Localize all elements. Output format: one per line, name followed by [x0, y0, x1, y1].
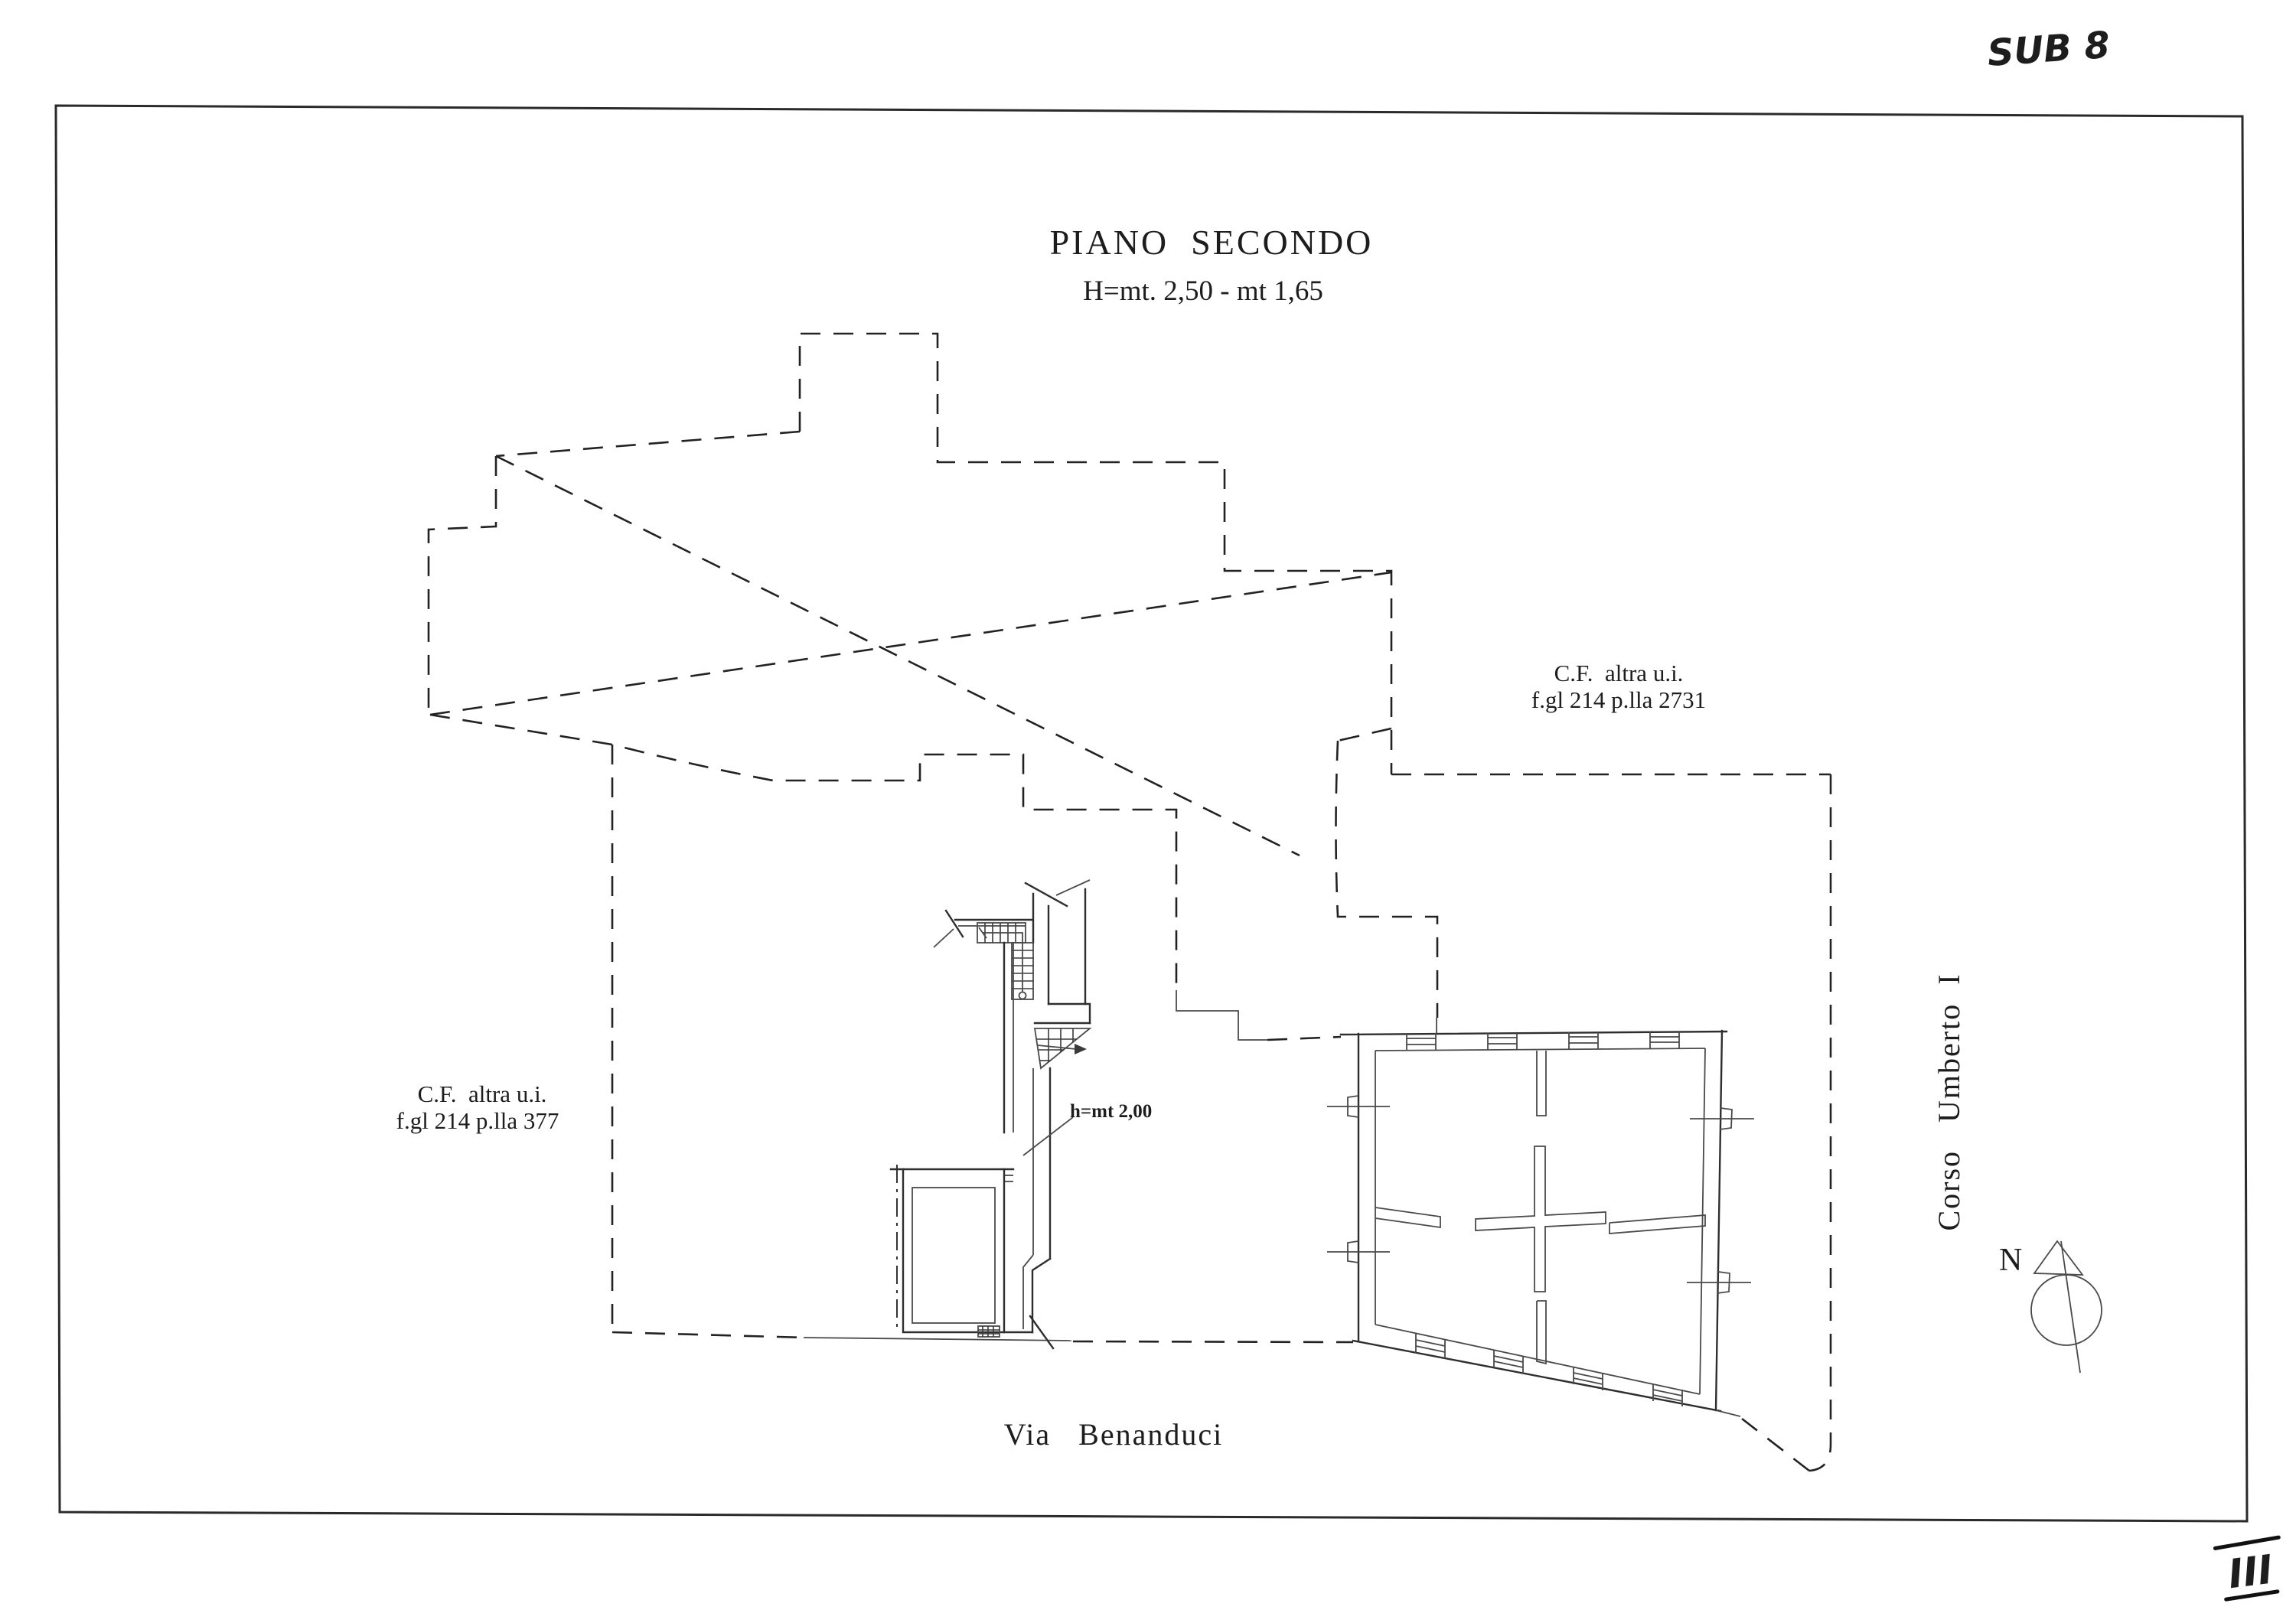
page-mark-text: III: [2226, 1547, 2275, 1599]
lower-right-step-outer: [1032, 1259, 1050, 1332]
boundary-topleft-slope: [496, 432, 800, 456]
boundary-diagonal-b: [430, 572, 1391, 715]
roof-diagonal: [934, 929, 954, 947]
main-building: [1327, 1031, 1754, 1416]
plan-height-note: H=mt. 2,50 - mt 1,65: [1083, 275, 1323, 307]
triangle-arrow-shaft: [1038, 1045, 1076, 1049]
boundary-to-building: [1267, 1037, 1341, 1040]
cf-left-label-line2: f.gl 214 p.lla 377: [396, 1107, 559, 1134]
triangle-arrow-head: [1075, 1044, 1087, 1054]
compass-arrowhead: [2034, 1241, 2082, 1275]
boundary-bottom-right: [1742, 1419, 1809, 1471]
boundary-left-side: [429, 456, 496, 715]
building-top-wall-inner: [1375, 1048, 1705, 1051]
dashed-property-boundary: [429, 334, 1831, 1471]
boundary-diagonal-a: [496, 456, 1300, 855]
plan-title: PIANO SECONDO: [1050, 223, 1374, 262]
floor-plan-drawing: PIANO SECONDO H=mt. 2,50 - mt 1,65 C.F. …: [0, 0, 2296, 1623]
cf-right-label-line1: C.F. altra u.i.: [1554, 660, 1684, 686]
handwritten-page-mark: III: [2215, 1537, 2285, 1600]
boundary-top-bump: [800, 334, 1391, 774]
stair-arrow-end-circle: [1019, 992, 1026, 999]
neighbour-step-outline: [1176, 990, 1267, 1040]
north-compass-icon: [2031, 1241, 2102, 1373]
boundary-inner-vertical: [1336, 741, 1438, 1018]
drawing-frame-border: [56, 106, 2247, 1521]
cut-slash-top: [1026, 883, 1067, 906]
boundary-bottom-left: [612, 1332, 805, 1338]
building-bottom-wall-inner: [1375, 1325, 1700, 1394]
building-ground-right: [1716, 1410, 1740, 1416]
building-top-wall-outer: [1341, 1031, 1727, 1035]
interior-partitions: [1375, 1051, 1705, 1364]
handwritten-sub-note: SUB 8: [1986, 24, 2112, 75]
ground-line: [804, 1338, 1071, 1341]
room-inner-wall: [912, 1188, 995, 1323]
boundary-inner-step: [1338, 728, 1391, 741]
building-right-wall-inner: [1700, 1048, 1705, 1394]
stairwell-building: [804, 880, 1090, 1348]
scanned-floor-plan-sheet: PIANO SECONDO H=mt. 2,50 - mt 1,65 C.F. …: [0, 0, 2296, 1623]
north-letter: N: [1999, 1243, 2022, 1278]
cf-left-label-line1: C.F. altra u.i.: [418, 1080, 547, 1107]
height-annotation-leader: [1023, 1117, 1073, 1155]
compass-needle: [2061, 1241, 2080, 1373]
street-label-corso-umberto: Corso Umberto I: [1932, 973, 1966, 1230]
street-label-via-benanduci: Via Benanduci: [1004, 1417, 1223, 1452]
stair-direction-arrow: [983, 933, 1022, 992]
landing-cut-slash: [946, 911, 963, 937]
boundary-right-vertical: [1809, 774, 1831, 1471]
boundary-bottom-middle: [1073, 1341, 1353, 1342]
corridor-right-turn: [1049, 1004, 1090, 1023]
building-right-wall-outer: [1716, 1031, 1722, 1410]
cut-slash-bottom: [1030, 1316, 1053, 1348]
room-outer-wall-2: [903, 1169, 1032, 1332]
stair-height-annotation: h=mt 2,00: [1070, 1101, 1152, 1122]
central-cross-wall: [1476, 1146, 1606, 1292]
boundary-bottom-zigzag: [430, 715, 1176, 990]
compass-circle: [2031, 1275, 2102, 1345]
cf-right-label-line2: f.gl 214 p.lla 2731: [1531, 686, 1706, 713]
